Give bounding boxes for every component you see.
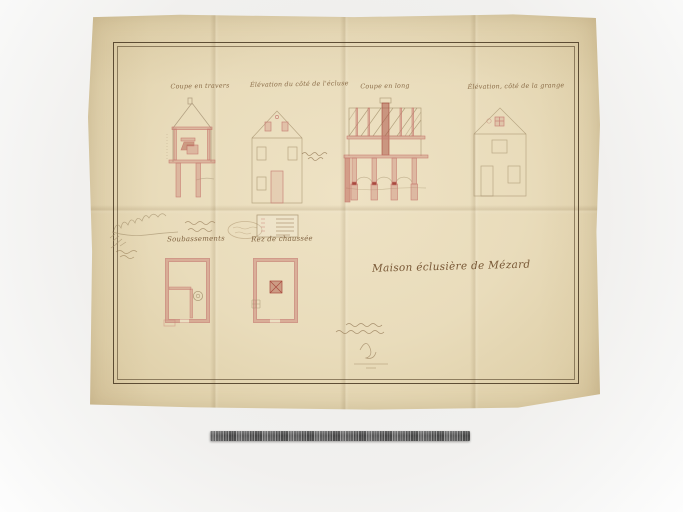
elevation-ecluse-drawing	[248, 106, 306, 208]
scale-annotation-script	[300, 148, 336, 162]
landscape-sketch	[108, 206, 182, 262]
verification-note-script	[182, 218, 226, 236]
drawing-title-elevation-ecluse: Élévation du côté de l'écluse	[250, 79, 348, 89]
plan-title-rez-de-chaussee: Rez de chaussée	[244, 234, 320, 243]
longitudinal-section-drawing	[344, 98, 428, 206]
elevation-grange-drawing	[470, 104, 530, 200]
drawing-title-coupe-en-long: Coupe en long	[342, 81, 428, 90]
cross-section-drawing	[166, 98, 218, 210]
ground-floor-plan	[250, 256, 302, 328]
drawing-title-coupe-en-travers: Coupe en travers	[158, 81, 242, 90]
plan-title-soubassements: Soubassements	[156, 234, 236, 243]
foundations-plan	[162, 256, 214, 328]
photographic-scale-ruler	[210, 431, 470, 441]
photograph-of-archival-plan: Coupe en travers Élévation du côté de l'…	[0, 0, 683, 512]
drawing-sheet: Coupe en travers Élévation du côté de l'…	[88, 14, 600, 410]
certification-script-and-signature	[332, 320, 416, 372]
